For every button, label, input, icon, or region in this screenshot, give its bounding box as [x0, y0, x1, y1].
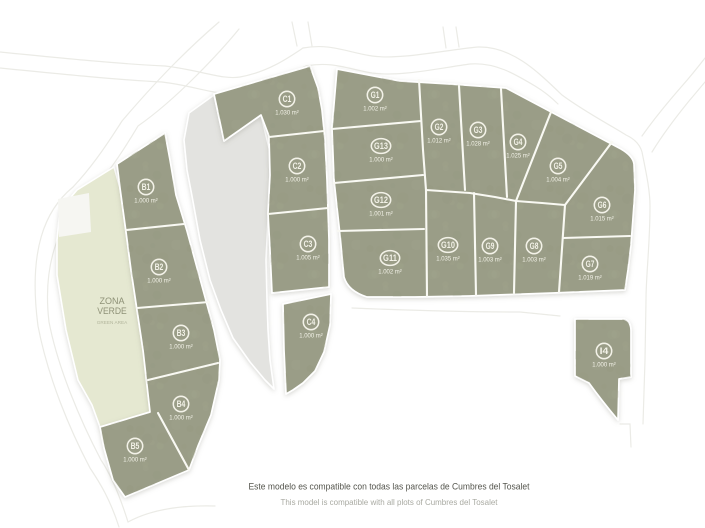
svg-text:1.003 m²: 1.003 m² [522, 256, 546, 263]
svg-text:G8: G8 [530, 241, 539, 251]
svg-text:I4: I4 [600, 346, 609, 356]
svg-text:1.025 m²: 1.025 m² [506, 152, 530, 159]
svg-text:1.015 m²: 1.015 m² [590, 215, 614, 222]
svg-text:GREEN AREA: GREEN AREA [97, 320, 128, 326]
svg-text:1.004 m²: 1.004 m² [546, 176, 570, 183]
svg-text:G12: G12 [374, 195, 388, 205]
svg-text:1.005 m²: 1.005 m² [296, 254, 320, 261]
svg-text:1.035 m²: 1.035 m² [436, 255, 460, 262]
svg-text:This model is compatible with: This model is compatible with all plots … [281, 497, 499, 507]
svg-text:1.003 m²: 1.003 m² [478, 256, 502, 263]
svg-text:G6: G6 [598, 200, 607, 210]
svg-text:1.000 m²: 1.000 m² [169, 414, 193, 421]
svg-text:G4: G4 [514, 137, 523, 147]
svg-text:G7: G7 [586, 259, 595, 269]
svg-text:1.028 m²: 1.028 m² [466, 140, 490, 147]
svg-text:B2: B2 [155, 262, 164, 272]
svg-text:1.000 m²: 1.000 m² [123, 456, 147, 463]
svg-text:1.000 m²: 1.000 m² [134, 197, 158, 204]
svg-text:1.002 m²: 1.002 m² [363, 105, 387, 112]
svg-text:1.030 m²: 1.030 m² [275, 109, 299, 116]
svg-text:1.000 m²: 1.000 m² [147, 277, 171, 284]
svg-text:B3: B3 [177, 328, 186, 338]
svg-text:G1: G1 [371, 90, 380, 100]
svg-text:C3: C3 [304, 239, 313, 249]
svg-text:1.001 m²: 1.001 m² [369, 210, 393, 217]
svg-text:G5: G5 [554, 161, 563, 171]
svg-text:B1: B1 [142, 182, 151, 192]
svg-text:G9: G9 [486, 241, 495, 251]
svg-text:G10: G10 [441, 240, 455, 250]
svg-text:VERDE: VERDE [97, 306, 127, 317]
svg-text:1.000 m²: 1.000 m² [592, 361, 616, 368]
svg-text:C1: C1 [283, 94, 292, 104]
svg-text:G13: G13 [374, 141, 388, 151]
svg-text:B5: B5 [131, 441, 140, 451]
svg-text:B4: B4 [177, 399, 186, 409]
svg-text:Este modelo es compatible con: Este modelo es compatible con todas las … [249, 482, 530, 492]
svg-text:1.000 m²: 1.000 m² [169, 343, 193, 350]
svg-text:G11: G11 [383, 253, 397, 263]
svg-text:1.019 m²: 1.019 m² [578, 274, 602, 281]
svg-text:G2: G2 [435, 122, 444, 132]
svg-text:C2: C2 [293, 161, 302, 171]
svg-text:1.000 m²: 1.000 m² [369, 156, 393, 163]
svg-text:C4: C4 [307, 317, 316, 327]
svg-text:1.002 m²: 1.002 m² [378, 268, 402, 275]
svg-text:1.012 m²: 1.012 m² [427, 137, 451, 144]
svg-text:1.000 m²: 1.000 m² [285, 176, 309, 183]
svg-text:G3: G3 [474, 125, 483, 135]
svg-text:1.000 m²: 1.000 m² [299, 332, 323, 339]
